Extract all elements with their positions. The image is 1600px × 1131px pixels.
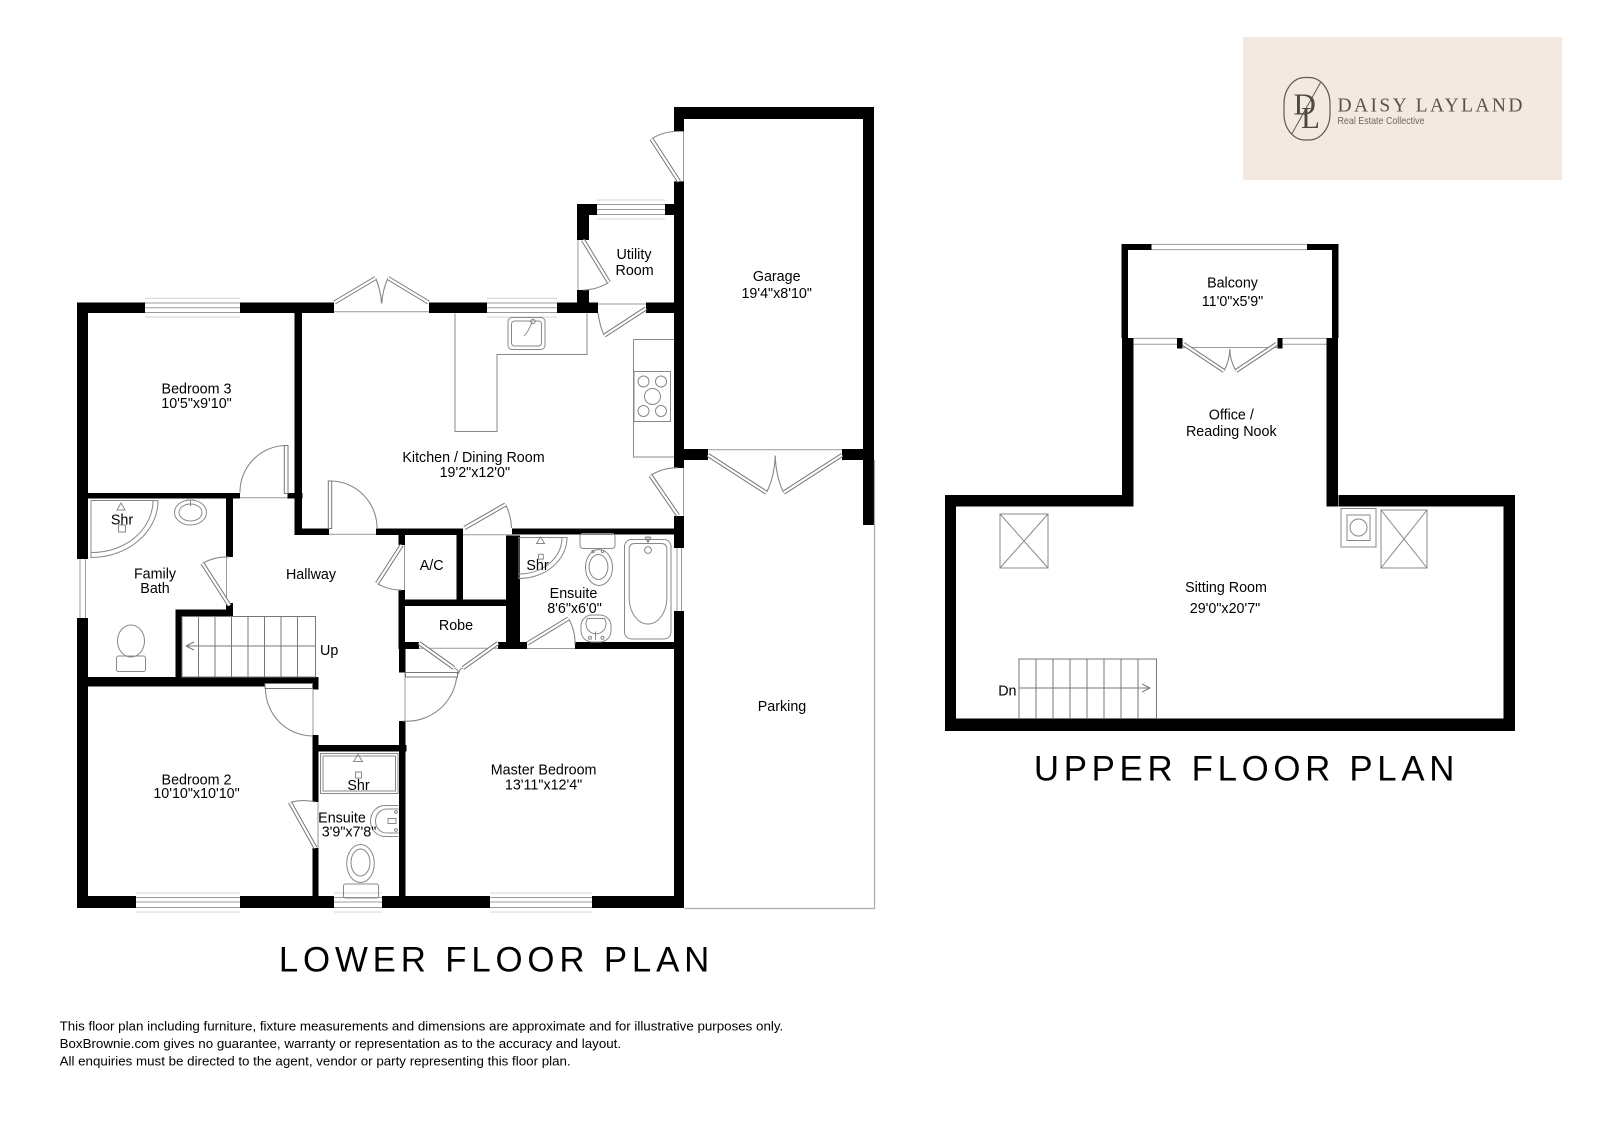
- svg-text:19'4"x8'10": 19'4"x8'10": [741, 286, 811, 302]
- svg-text:29'0"x20'7": 29'0"x20'7": [1190, 601, 1260, 617]
- svg-text:11'0"x5'9": 11'0"x5'9": [1202, 294, 1263, 310]
- svg-text:Hallway: Hallway: [286, 567, 337, 583]
- svg-text:13'11"x12'4": 13'11"x12'4": [505, 777, 582, 793]
- svg-text:Shr: Shr: [347, 778, 369, 794]
- svg-text:BoxBrownie.com gives no guaran: BoxBrownie.com gives no guarantee, warra…: [60, 1036, 622, 1051]
- svg-text:10'10"x10'10": 10'10"x10'10": [153, 786, 239, 802]
- svg-text:Reading Nook: Reading Nook: [1186, 424, 1277, 440]
- svg-text:L: L: [1301, 100, 1320, 135]
- svg-text:Robe: Robe: [439, 618, 473, 634]
- svg-text:3'9"x7'8": 3'9"x7'8": [322, 824, 377, 840]
- svg-text:All enquiries must be directed: All enquiries must be directed to the ag…: [60, 1054, 571, 1069]
- svg-text:Sitting Room: Sitting Room: [1185, 580, 1267, 596]
- svg-text:Real Estate Collective: Real Estate Collective: [1338, 115, 1425, 127]
- svg-text:A/C: A/C: [420, 558, 444, 574]
- svg-text:Office /: Office /: [1209, 408, 1254, 424]
- svg-text:Room: Room: [616, 263, 654, 279]
- svg-text:10'5"x9'10": 10'5"x9'10": [161, 396, 231, 412]
- svg-text:Parking: Parking: [758, 699, 807, 715]
- svg-text:Utility: Utility: [617, 247, 653, 263]
- svg-text:Balcony: Balcony: [1207, 276, 1259, 292]
- svg-text:This floor plan including furn: This floor plan including furniture, fix…: [60, 1018, 784, 1033]
- svg-text:UPPER FLOOR PLAN: UPPER FLOOR PLAN: [1034, 750, 1459, 789]
- svg-text:Garage: Garage: [753, 269, 801, 285]
- svg-text:Ensuite: Ensuite: [550, 586, 598, 602]
- svg-text:Shr: Shr: [111, 513, 133, 529]
- svg-text:LOWER FLOOR PLAN: LOWER FLOOR PLAN: [279, 941, 714, 980]
- svg-text:Up: Up: [320, 643, 338, 659]
- svg-text:Dn: Dn: [998, 683, 1016, 699]
- svg-text:8'6"x6'0": 8'6"x6'0": [547, 601, 602, 617]
- svg-text:DAISY LAYLAND: DAISY LAYLAND: [1338, 96, 1525, 117]
- svg-text:Master Bedroom: Master Bedroom: [491, 762, 597, 778]
- svg-text:Kitchen / Dining Room: Kitchen / Dining Room: [402, 450, 544, 466]
- svg-text:19'2"x12'0": 19'2"x12'0": [440, 465, 510, 481]
- svg-text:Shr: Shr: [526, 558, 548, 574]
- svg-text:Bath: Bath: [140, 581, 169, 597]
